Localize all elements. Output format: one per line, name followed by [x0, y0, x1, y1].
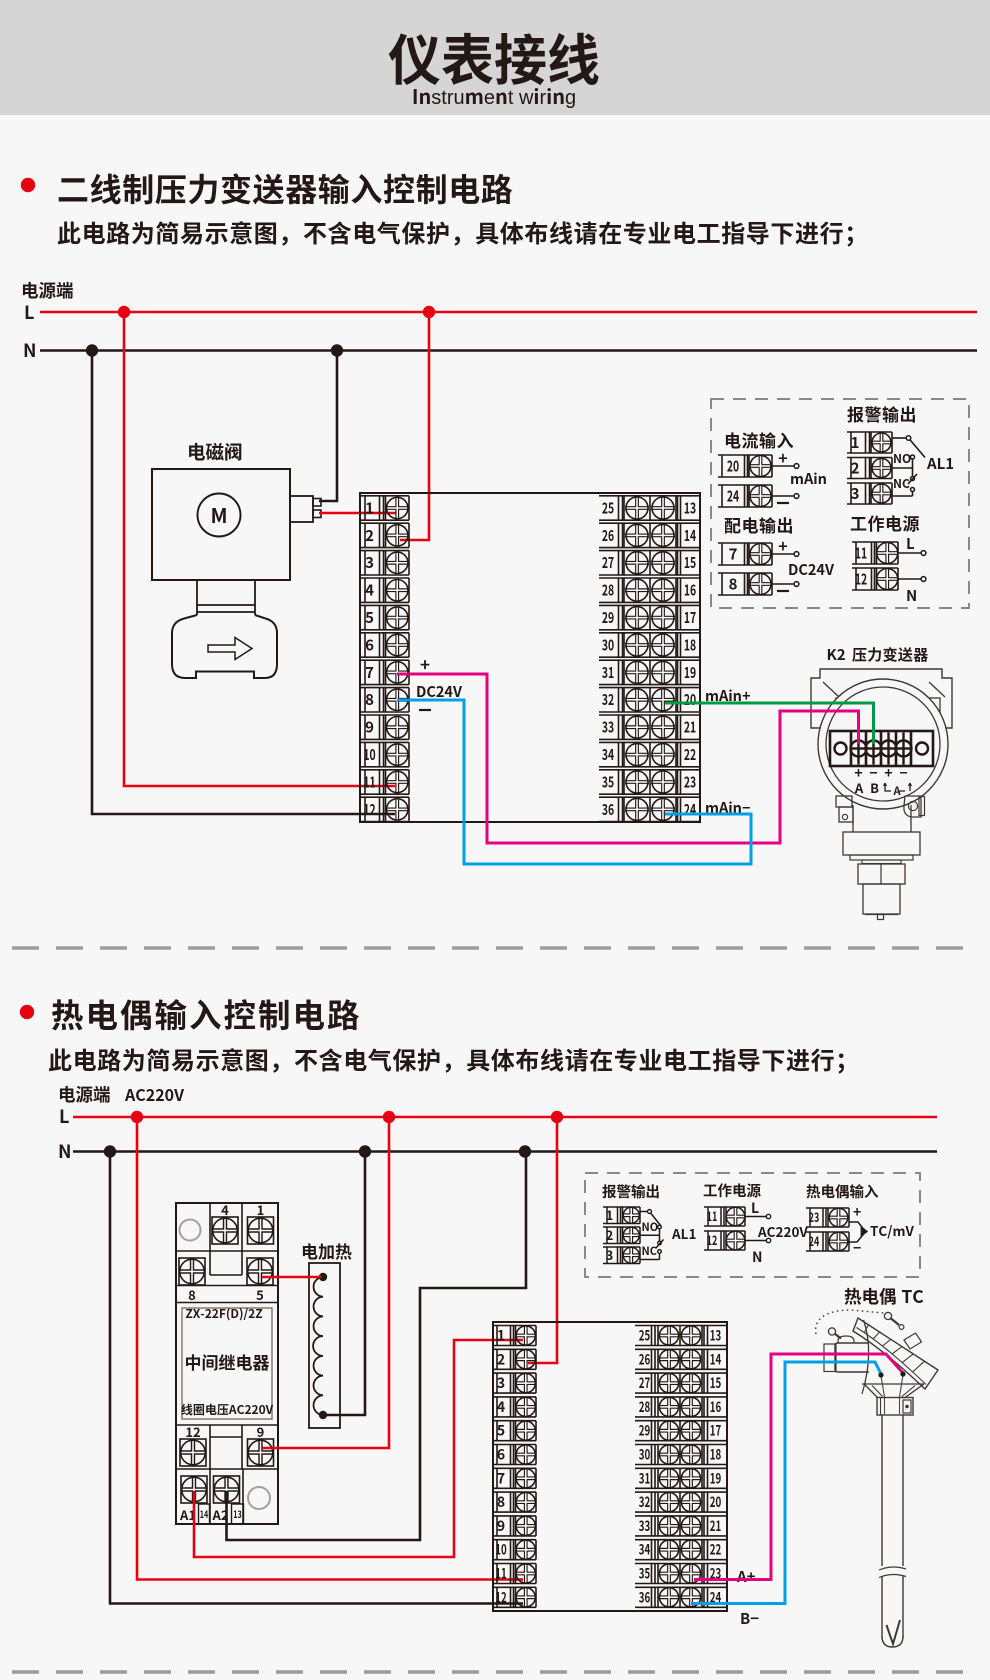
svg-text:A: A — [854, 778, 864, 797]
svg-text:10: 10 — [495, 1540, 506, 1560]
svg-text:AL1: AL1 — [926, 453, 954, 474]
svg-text:6: 6 — [365, 634, 374, 655]
svg-text:中间继电器: 中间继电器 — [185, 1349, 270, 1374]
svg-text:二线制压力变送器输入控制电路: 二线制压力变送器输入控制电路 — [57, 165, 513, 211]
svg-text:M: M — [210, 500, 227, 529]
svg-text:16: 16 — [710, 1397, 722, 1417]
svg-text:34: 34 — [639, 1540, 651, 1560]
svg-text:1: 1 — [851, 432, 860, 453]
svg-text:报警输出: 报警输出 — [602, 1181, 660, 1202]
svg-text:23: 23 — [809, 1207, 820, 1226]
svg-text:AC220V: AC220V — [124, 1082, 184, 1106]
svg-text:Instrument wiring: Instrument wiring — [412, 81, 576, 110]
svg-text:NO: NO — [893, 450, 911, 467]
svg-text:21: 21 — [710, 1516, 722, 1536]
svg-text:14: 14 — [684, 525, 696, 546]
svg-text:工作电源: 工作电源 — [850, 510, 920, 535]
svg-text:B: B — [870, 778, 879, 797]
svg-text:2: 2 — [606, 1225, 614, 1244]
svg-text:11: 11 — [495, 1564, 506, 1584]
svg-text:N: N — [23, 337, 36, 363]
svg-text:B−: B− — [740, 1608, 759, 1629]
svg-text:7: 7 — [729, 543, 738, 564]
svg-text:20: 20 — [684, 689, 696, 710]
svg-text:20: 20 — [727, 455, 739, 476]
svg-text:AL1: AL1 — [671, 1223, 696, 1243]
svg-text:电磁阀: 电磁阀 — [187, 439, 243, 465]
svg-text:25: 25 — [639, 1326, 651, 1346]
svg-text:34: 34 — [602, 744, 614, 765]
svg-text:30: 30 — [639, 1445, 651, 1465]
svg-text:18: 18 — [710, 1445, 722, 1465]
svg-text:12: 12 — [707, 1230, 718, 1249]
svg-text:33: 33 — [639, 1516, 651, 1536]
svg-text:8: 8 — [188, 1285, 196, 1304]
svg-text:热电偶 TC: 热电偶 TC — [844, 1284, 924, 1309]
svg-text:6: 6 — [497, 1445, 505, 1465]
svg-text:3: 3 — [851, 483, 860, 504]
svg-text:L: L — [59, 1103, 69, 1129]
svg-text:热电偶输入控制电路: 热电偶输入控制电路 — [51, 990, 362, 1037]
svg-text:A+: A+ — [736, 1566, 756, 1587]
svg-text:线圈电压AC220V: 线圈电压AC220V — [181, 1401, 274, 1418]
svg-text:9: 9 — [497, 1516, 505, 1536]
svg-text:+: + — [853, 1202, 861, 1222]
svg-text:29: 29 — [639, 1421, 651, 1441]
svg-text:12: 12 — [363, 799, 375, 820]
svg-text:1: 1 — [606, 1205, 614, 1224]
svg-text:35: 35 — [602, 771, 614, 792]
svg-text:27: 27 — [639, 1373, 651, 1393]
svg-text:16: 16 — [684, 580, 696, 601]
svg-text:1: 1 — [497, 1326, 505, 1346]
svg-text:4: 4 — [365, 580, 374, 601]
svg-text:mAin: mAin — [790, 468, 827, 489]
svg-text:4: 4 — [497, 1397, 505, 1417]
svg-text:36: 36 — [639, 1587, 651, 1607]
svg-text:32: 32 — [639, 1492, 651, 1512]
svg-text:ZX-22F(D)/2Z: ZX-22F(D)/2Z — [185, 1305, 262, 1322]
svg-text:+: + — [884, 763, 892, 783]
svg-text:26: 26 — [639, 1349, 651, 1369]
svg-text:7: 7 — [365, 662, 374, 683]
svg-text:18: 18 — [684, 634, 696, 655]
svg-text:N: N — [58, 1138, 71, 1164]
svg-text:20: 20 — [710, 1492, 722, 1512]
svg-text:K2: K2 — [827, 644, 846, 665]
svg-text:13: 13 — [710, 1326, 722, 1346]
svg-text:NC: NC — [642, 1243, 657, 1259]
svg-text:L: L — [751, 1198, 759, 1218]
svg-text:8: 8 — [729, 573, 738, 594]
svg-text:电加热: 电加热 — [301, 1238, 352, 1263]
svg-text:热电偶输入: 热电偶输入 — [806, 1181, 879, 1202]
svg-text:9: 9 — [257, 1422, 265, 1441]
svg-text:24: 24 — [727, 485, 739, 506]
svg-text:13: 13 — [233, 1506, 242, 1521]
svg-text:23: 23 — [684, 771, 696, 792]
svg-text:11: 11 — [707, 1206, 718, 1225]
svg-text:28: 28 — [639, 1397, 651, 1417]
svg-text:29: 29 — [602, 607, 614, 628]
svg-text:1: 1 — [365, 497, 374, 518]
svg-text:11: 11 — [855, 542, 867, 563]
svg-text:15: 15 — [710, 1373, 722, 1393]
svg-text:L: L — [24, 299, 34, 325]
svg-text:5: 5 — [365, 607, 374, 628]
svg-text:5: 5 — [256, 1285, 264, 1304]
svg-text:4: 4 — [221, 1200, 229, 1219]
svg-text:1: 1 — [257, 1200, 265, 1219]
svg-text:14: 14 — [200, 1506, 209, 1521]
svg-text:24: 24 — [684, 799, 696, 820]
svg-text:报警输出: 报警输出 — [847, 401, 917, 426]
svg-text:DC24V: DC24V — [788, 559, 835, 580]
svg-text:10: 10 — [363, 744, 375, 765]
svg-text:21: 21 — [684, 717, 696, 738]
svg-text:−: − — [899, 763, 907, 783]
svg-text:7: 7 — [497, 1468, 505, 1488]
svg-text:11: 11 — [363, 771, 375, 792]
svg-text:3: 3 — [365, 552, 374, 573]
svg-text:此电路为简易示意图，不含电气保护，具体布线请在专业电工指导下: 此电路为简易示意图，不含电气保护，具体布线请在专业电工指导下进行； — [48, 1041, 860, 1076]
svg-text:2: 2 — [365, 525, 374, 546]
svg-text:压力变送器: 压力变送器 — [852, 644, 929, 665]
svg-text:A: A — [892, 783, 901, 799]
svg-text:8: 8 — [497, 1492, 505, 1512]
svg-text:2: 2 — [497, 1349, 505, 1369]
svg-text:19: 19 — [710, 1468, 722, 1488]
svg-text:12: 12 — [495, 1587, 506, 1607]
svg-text:30: 30 — [602, 634, 614, 655]
svg-text:3: 3 — [606, 1245, 614, 1264]
svg-text:17: 17 — [710, 1421, 722, 1441]
svg-text:L: L — [906, 533, 915, 554]
svg-text:此电路为简易示意图，不含电气保护，具体布线请在专业电工指导下: 此电路为简易示意图，不含电气保护，具体布线请在专业电工指导下进行； — [57, 214, 869, 249]
svg-text:31: 31 — [639, 1468, 651, 1488]
svg-text:12: 12 — [185, 1422, 200, 1441]
svg-text:8: 8 — [365, 689, 374, 710]
svg-text:AC220V: AC220V — [757, 1221, 808, 1241]
svg-text:17: 17 — [684, 607, 696, 628]
svg-text:14: 14 — [710, 1349, 722, 1369]
svg-text:24: 24 — [809, 1231, 820, 1250]
svg-text:26: 26 — [602, 525, 614, 546]
svg-text:N: N — [906, 585, 917, 606]
svg-text:5: 5 — [497, 1421, 505, 1441]
svg-text:15: 15 — [684, 552, 696, 573]
svg-text:25: 25 — [602, 497, 614, 518]
svg-text:32: 32 — [602, 689, 614, 710]
svg-text:19: 19 — [684, 662, 696, 683]
svg-text:33: 33 — [602, 717, 614, 738]
svg-text:NC: NC — [893, 475, 910, 492]
svg-text:12: 12 — [855, 568, 867, 589]
svg-text:NO: NO — [642, 1219, 659, 1235]
svg-text:9: 9 — [365, 717, 374, 738]
svg-text:35: 35 — [639, 1564, 651, 1584]
svg-text:+: + — [420, 651, 430, 676]
svg-text:36: 36 — [602, 799, 614, 820]
svg-text:2: 2 — [851, 457, 860, 478]
svg-text:22: 22 — [684, 744, 696, 765]
svg-text:13: 13 — [684, 497, 696, 518]
svg-text:22: 22 — [710, 1540, 722, 1560]
svg-text:TC/mV: TC/mV — [870, 1220, 915, 1240]
svg-text:N: N — [752, 1247, 763, 1267]
svg-text:27: 27 — [602, 552, 614, 573]
svg-text:3: 3 — [497, 1373, 505, 1393]
svg-text:28: 28 — [602, 580, 614, 601]
svg-text:31: 31 — [602, 662, 614, 683]
